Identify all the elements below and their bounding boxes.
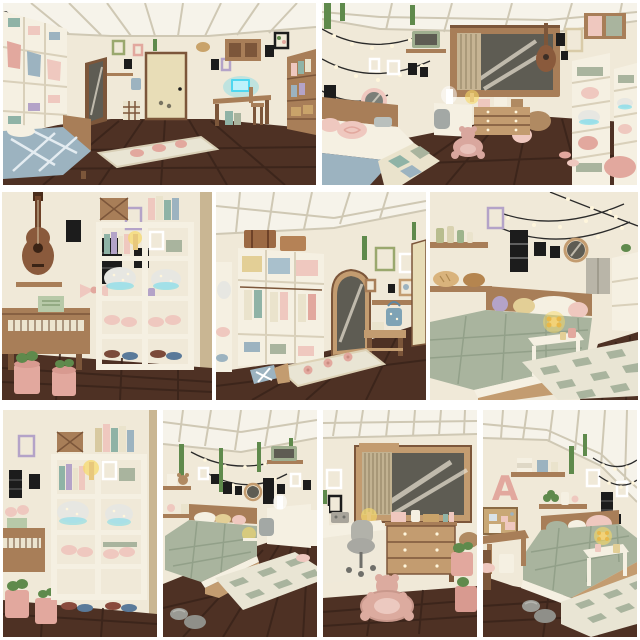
round-mirror [565,239,587,261]
black-frame [561,51,568,60]
wardrobe-shelving [3,11,67,137]
wardrobe-scene [216,192,426,400]
bed-corner-scene: A [483,410,637,637]
bed-closeup-scene [430,192,638,400]
panel-bed-closeup [430,192,638,400]
slipper [559,152,571,159]
pink-slipper [296,554,310,562]
vine [153,39,157,51]
panel-wardrobe-mirror [216,192,426,400]
panel-room-door-view [3,3,316,185]
panel-bed-corner: A [483,410,637,637]
desk-window-scene [323,410,477,637]
door-edge [412,240,426,346]
leaning-mirror [85,57,107,127]
panel-shelf-closeup [3,410,157,637]
wardrobe [238,248,324,366]
panel-room-window-view [322,3,637,185]
bedroom-corner-scene [163,410,317,637]
door [146,53,186,119]
panel-bedroom-corner [163,410,317,637]
bookshelf [287,49,316,135]
side-edge [149,410,157,637]
black-frame [556,33,565,46]
arched-mirror [332,270,370,356]
side-shelf [216,262,232,372]
plant-leaf [323,490,327,504]
room-door-scene [3,3,316,185]
screenshot-collage: A [0,0,640,640]
vine [362,236,367,260]
room-window-scene [322,3,637,185]
panel-music-wall [2,192,212,400]
music-wall-scene [2,192,212,400]
laundry-basket [123,101,140,120]
vine [412,222,416,240]
ceiling [323,410,477,438]
tv-shelf [406,31,446,53]
panel-desk-window [323,410,477,637]
vine [569,446,574,474]
slipper [567,160,579,167]
leaning-art [584,13,626,39]
vine [583,434,587,456]
shelf-towers [572,53,637,185]
shelf-closeup-scene [3,410,157,637]
tall-frame [566,29,582,51]
